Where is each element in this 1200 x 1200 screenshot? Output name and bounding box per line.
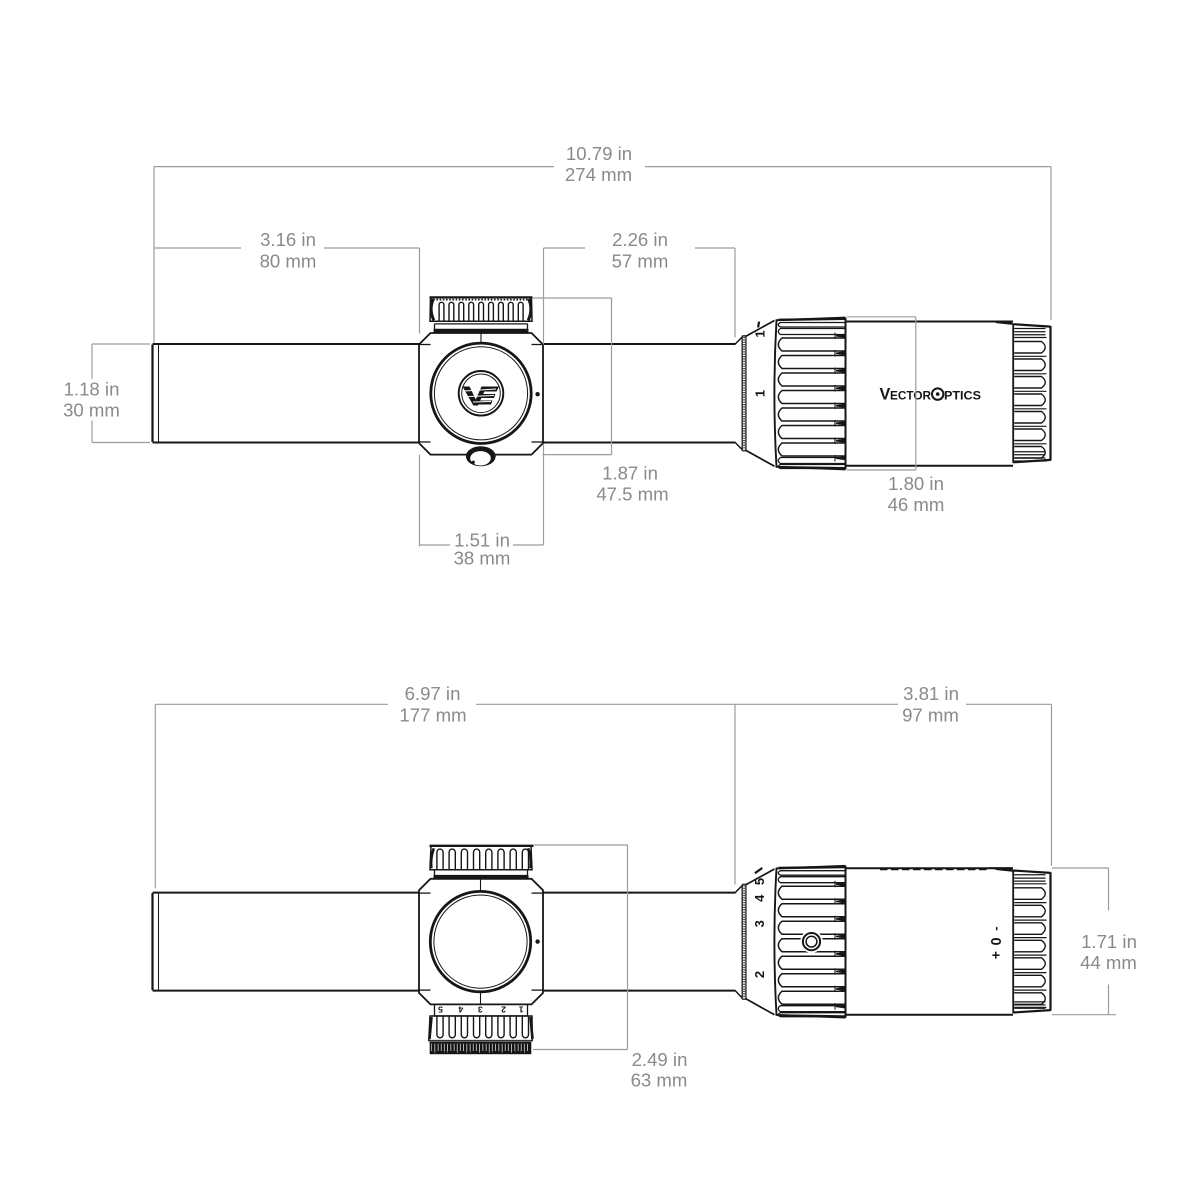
svg-text:1.18 in: 1.18 in xyxy=(64,378,120,399)
svg-text:2: 2 xyxy=(752,971,767,978)
svg-text:-: - xyxy=(989,927,1003,931)
svg-text:47.5 mm: 47.5 mm xyxy=(596,483,668,504)
svg-text:5: 5 xyxy=(438,1005,443,1015)
svg-text:6.97 in: 6.97 in xyxy=(405,683,461,704)
svg-text:30 mm: 30 mm xyxy=(63,399,120,420)
svg-text:1.80 in: 1.80 in xyxy=(888,473,944,494)
svg-text:4: 4 xyxy=(752,894,767,902)
svg-text:1: 1 xyxy=(753,330,768,337)
svg-text:1.87 in: 1.87 in xyxy=(602,462,658,483)
svg-text:46 mm: 46 mm xyxy=(888,494,945,515)
svg-text:97 mm: 97 mm xyxy=(902,705,959,726)
svg-text:5: 5 xyxy=(752,878,767,885)
svg-text:274 mm: 274 mm xyxy=(565,164,632,185)
svg-text:2.26 in: 2.26 in xyxy=(612,229,668,250)
svg-text:80 mm: 80 mm xyxy=(260,250,317,271)
svg-text:1: 1 xyxy=(519,1005,524,1015)
svg-text:2.49 in: 2.49 in xyxy=(632,1049,688,1070)
svg-text:1.71 in: 1.71 in xyxy=(1081,931,1137,952)
svg-text:57 mm: 57 mm xyxy=(612,250,669,271)
svg-text:1: 1 xyxy=(753,390,768,397)
svg-text:2: 2 xyxy=(501,1005,506,1015)
svg-text:0: 0 xyxy=(989,937,1005,945)
svg-text:3.81 in: 3.81 in xyxy=(903,683,959,704)
svg-text:177 mm: 177 mm xyxy=(399,705,466,726)
svg-text:63 mm: 63 mm xyxy=(631,1069,688,1090)
svg-text:4: 4 xyxy=(458,1005,463,1015)
svg-text:3: 3 xyxy=(478,1005,483,1015)
svg-text:V: V xyxy=(880,386,891,404)
svg-text:ECTOR: ECTOR xyxy=(890,389,931,403)
svg-text:+: + xyxy=(988,951,1004,959)
svg-text:44 mm: 44 mm xyxy=(1080,952,1137,973)
svg-text:10.79 in: 10.79 in xyxy=(566,143,632,164)
svg-text:3: 3 xyxy=(752,920,767,927)
svg-text:38 mm: 38 mm xyxy=(454,547,511,568)
svg-text:PTICS: PTICS xyxy=(944,389,981,403)
svg-text:3.16 in: 3.16 in xyxy=(260,229,316,250)
